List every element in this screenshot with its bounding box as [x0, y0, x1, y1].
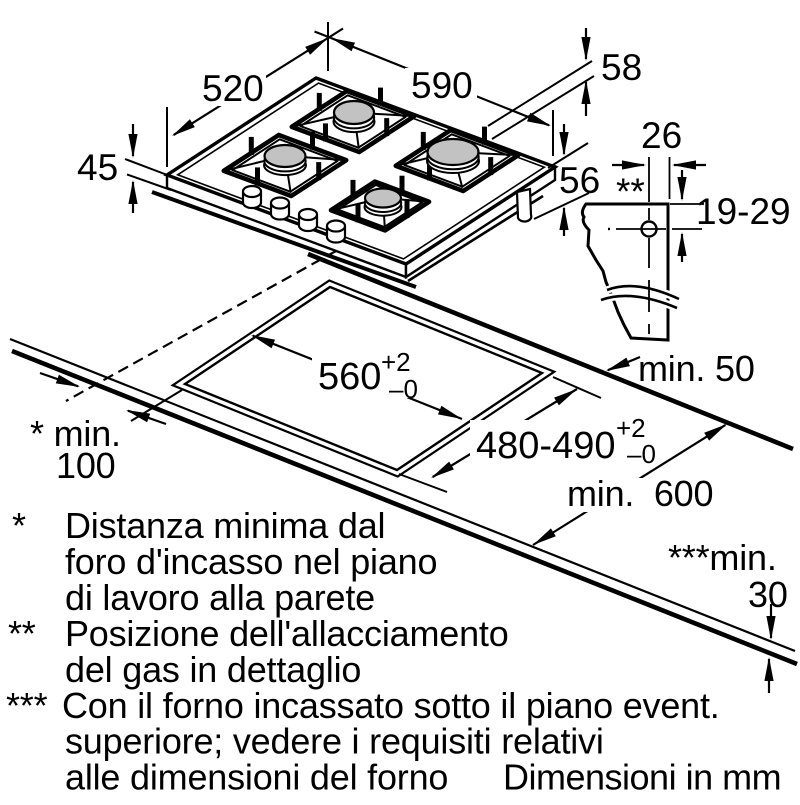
svg-text:superiore; vedere i requisiti: superiore; vedere i requisiti relativi [65, 721, 604, 762]
svg-text:26: 26 [641, 115, 682, 156]
svg-text:–0: –0 [627, 439, 656, 469]
svg-text:**: ** [616, 171, 645, 212]
svg-text:Dimensioni in mm: Dimensioni in mm [503, 757, 781, 798]
svg-text:45: 45 [77, 147, 118, 188]
svg-text:Posizione dell'allacciamento: Posizione dell'allacciamento [65, 613, 509, 654]
svg-text:*: * [12, 505, 26, 546]
svg-text:min. 50: min. 50 [638, 348, 755, 389]
svg-text:58: 58 [601, 47, 642, 88]
svg-text:+2: +2 [381, 347, 411, 377]
svg-text:***: *** [6, 685, 48, 726]
svg-text:590: 590 [411, 65, 473, 106]
svg-text:foro d'incasso nel piano: foro d'incasso nel piano [65, 541, 437, 582]
svg-text:520: 520 [202, 68, 264, 109]
svg-text:del gas in dettaglio: del gas in dettaglio [65, 649, 361, 690]
svg-text:480-490: 480-490 [476, 425, 615, 467]
svg-text:alle dimensioni del forno: alle dimensioni del forno [65, 757, 448, 798]
svg-text:di lavoro alla parete: di lavoro alla parete [65, 577, 375, 618]
svg-text:19-29: 19-29 [696, 191, 791, 232]
svg-text:30: 30 [748, 574, 788, 615]
svg-text:**: ** [8, 613, 36, 654]
svg-text:560: 560 [318, 356, 381, 398]
svg-text:100: 100 [56, 445, 115, 486]
svg-text:56: 56 [559, 160, 600, 201]
svg-text:Distanza minima dal: Distanza minima dal [65, 505, 385, 546]
svg-text:–0: –0 [389, 374, 418, 404]
svg-text:***min.: ***min. [668, 537, 777, 578]
svg-text:min. 600: min. 600 [567, 473, 713, 514]
